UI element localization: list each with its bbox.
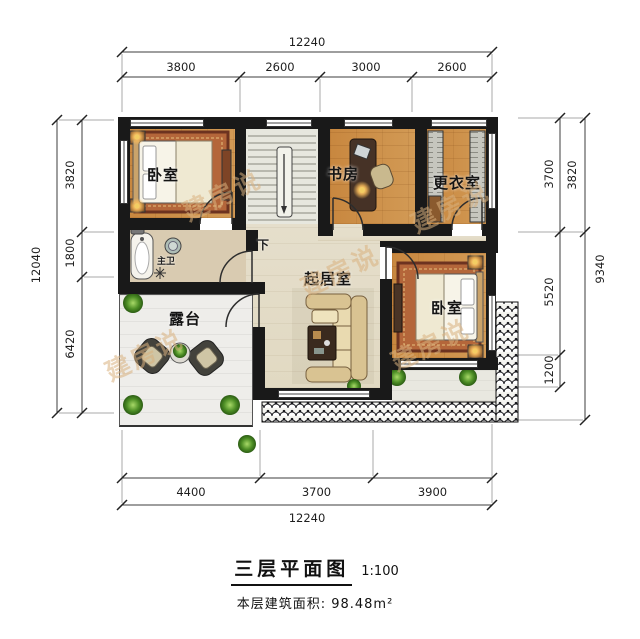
label-study: 书房 <box>303 163 383 184</box>
dim-top-3: 3000 <box>320 60 412 74</box>
dim-left-1: 3820 <box>63 155 77 195</box>
title-scale: 1:100 <box>361 564 398 579</box>
page-title: 三层平面图 <box>231 554 352 586</box>
dim-left-overall: 12040 <box>29 245 43 285</box>
label-terrace: 露台 <box>145 308 225 329</box>
dim-bottom-1: 4400 <box>122 485 260 499</box>
door-layer <box>0 0 640 639</box>
label-bedroom1: 卧室 <box>123 164 203 185</box>
door-bedroom1 <box>200 192 232 224</box>
floor-plan-page: 卧室 书房 更衣室 起居室 卧室 露台 主卫 下 建房说 建房说 建房说 建房说… <box>0 0 640 639</box>
dim-top-1: 3800 <box>122 60 240 74</box>
label-stairs-down: 下 <box>257 236 269 253</box>
dim-bottom-2: 3700 <box>260 485 373 499</box>
floor-area-value: 98.48m² <box>331 597 393 612</box>
label-living: 起居室 <box>288 268 368 289</box>
floor-area-text: 本层建筑面积: 98.48m² <box>170 593 460 612</box>
floor-area-label: 本层建筑面积: <box>237 597 326 612</box>
dim-left-3: 6420 <box>63 324 77 364</box>
dim-left-2: 1800 <box>63 233 77 273</box>
label-bath: 主卫 <box>157 254 175 267</box>
dim-right-inner-2: 5520 <box>542 272 556 312</box>
dim-bottom-overall: 12240 <box>122 511 492 525</box>
label-bedroom2: 卧室 <box>407 297 487 318</box>
dim-top-4: 2600 <box>412 60 492 74</box>
label-dressing: 更衣室 <box>417 172 497 193</box>
dim-bottom-3: 3900 <box>373 485 492 499</box>
door-terrace <box>226 294 259 327</box>
title-block: 三层平面图1:100 本层建筑面积: 98.48m² <box>170 554 460 612</box>
door-dressing <box>452 198 482 230</box>
door-bedroom2 <box>386 247 418 279</box>
door-study <box>333 198 363 230</box>
dim-right-outer-1: 3820 <box>565 155 579 195</box>
dim-right-inner-1: 3700 <box>542 154 556 194</box>
door-bathroom <box>220 251 252 283</box>
dim-right-outer-2: 9340 <box>593 249 607 289</box>
dim-top-2: 2600 <box>240 60 320 74</box>
dim-top-overall: 12240 <box>122 35 492 49</box>
dim-right-inner-3: 1200 <box>542 350 556 390</box>
